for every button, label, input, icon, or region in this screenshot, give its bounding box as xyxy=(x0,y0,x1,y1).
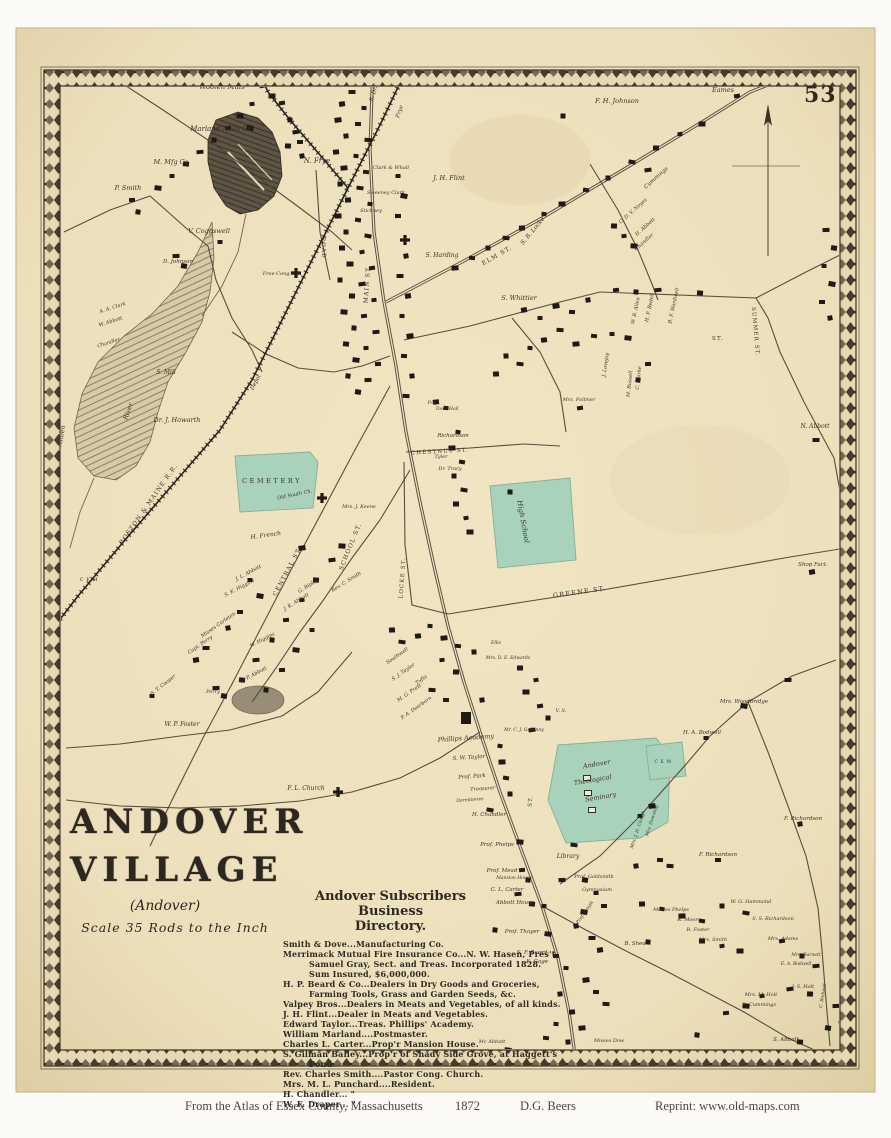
place-name-label: Misses Phelps xyxy=(652,907,689,913)
street-label: CEM xyxy=(80,577,100,583)
directory-title-line1: Andover Subscribers Business xyxy=(283,889,498,919)
building-marker xyxy=(237,610,243,614)
building-marker xyxy=(558,201,565,206)
place-name-label: Clark & Whall xyxy=(373,165,409,171)
building-marker xyxy=(516,839,523,844)
place-name-label: Mansion House xyxy=(495,875,532,881)
directory-entry-line: William Marland....Postmaster. xyxy=(283,1029,613,1039)
building-marker xyxy=(297,140,303,144)
place-name-label: P. Smith xyxy=(114,184,142,192)
building-marker xyxy=(533,678,539,683)
street-label: CEMETERY xyxy=(242,477,302,485)
place-name-label: Tyler xyxy=(434,454,448,460)
building-marker xyxy=(249,102,254,107)
place-name-label: F. H. Johnson xyxy=(594,97,639,105)
building-marker xyxy=(654,288,661,293)
church-marker xyxy=(317,496,327,499)
directory-entries: Smith & Dove...Manufacturing Co.Merrimac… xyxy=(283,939,613,1109)
building-marker xyxy=(351,325,356,330)
place-name-label: F. Richardson xyxy=(783,816,823,822)
building-marker xyxy=(339,101,346,107)
building-marker xyxy=(516,362,523,367)
building-marker xyxy=(361,314,367,319)
building-marker xyxy=(345,373,351,379)
map-scale-note: Scale 35 Rods to the Inch xyxy=(70,920,280,935)
building-marker xyxy=(639,901,645,906)
building-marker xyxy=(363,170,369,175)
building-marker xyxy=(611,223,617,228)
building-marker xyxy=(545,715,550,720)
place-name-label: S. Abbott xyxy=(773,1037,800,1043)
building-marker xyxy=(211,137,216,142)
directory-entry-line: Rev. Charles Smith....Pastor Cong. Churc… xyxy=(283,1069,613,1079)
building-marker xyxy=(353,154,358,158)
building-marker xyxy=(572,341,579,347)
building-marker xyxy=(666,864,673,868)
building-marker xyxy=(698,121,705,126)
high-school-area xyxy=(490,478,576,568)
place-name-label: V. S. xyxy=(556,708,567,714)
building-marker xyxy=(309,628,314,632)
building-marker xyxy=(831,245,838,251)
directory-entry-line: Edward Taylor...Treas. Phillips' Academy… xyxy=(283,1019,613,1029)
building-marker xyxy=(609,332,614,336)
academy-building xyxy=(461,712,471,724)
building-marker xyxy=(825,1025,832,1031)
place-name-label: R. Foster xyxy=(685,927,710,933)
street-label: ST. xyxy=(712,336,724,342)
building-marker xyxy=(471,649,476,654)
building-marker xyxy=(337,277,342,282)
building-marker xyxy=(333,149,339,155)
place-name-label: B. Cummings xyxy=(741,1002,776,1008)
building-marker xyxy=(497,744,503,749)
building-marker xyxy=(527,346,532,350)
building-marker xyxy=(355,122,361,126)
building-marker xyxy=(359,250,365,255)
building-marker xyxy=(677,132,683,137)
building-marker xyxy=(621,234,626,239)
building-marker xyxy=(812,438,819,442)
building-marker xyxy=(507,791,512,796)
place-name-label: E. A. Bodwell xyxy=(780,961,812,967)
building-marker xyxy=(633,289,638,294)
building-marker xyxy=(558,878,565,882)
directory-entry-line: Farming Tools, Grass and Garden Seeds, &… xyxy=(283,989,613,999)
building-marker xyxy=(285,143,291,148)
building-marker xyxy=(364,138,371,142)
caption-year: 1872 xyxy=(455,1099,480,1114)
place-name-label: S. S. Richardson xyxy=(752,916,794,922)
place-name-label: Mrs. J. Keene xyxy=(341,504,376,510)
place-name-label: R. Moore xyxy=(676,917,700,923)
building-marker xyxy=(193,657,200,663)
building-marker xyxy=(217,240,222,244)
building-marker xyxy=(819,300,825,304)
building-marker xyxy=(172,254,179,258)
scanned-map-page: Woolen MillsMurphyB. DriscollFryeMarland… xyxy=(0,0,891,1138)
place-name-label: P.O. xyxy=(427,400,437,406)
place-name-label: Mrs. Smith xyxy=(698,937,727,943)
building-marker xyxy=(154,185,162,191)
building-marker xyxy=(784,678,791,682)
building-marker xyxy=(352,357,360,363)
directory-entry-line: Mrs. M. L. Punchard....Resident. xyxy=(283,1079,613,1089)
building-marker xyxy=(719,903,724,908)
building-marker xyxy=(809,569,816,575)
building-marker xyxy=(395,214,401,218)
place-name-label: Ellis xyxy=(490,640,502,646)
building-marker xyxy=(657,858,663,862)
building-marker xyxy=(361,106,366,110)
place-name-label: W. P. Foster xyxy=(165,721,201,728)
directory-entry-line: Samuel Gray, Sect. and Treas. Incorporat… xyxy=(283,959,613,969)
building-marker xyxy=(560,113,565,118)
building-marker xyxy=(409,373,415,379)
building-marker xyxy=(268,93,275,98)
building-marker xyxy=(395,174,400,178)
building-marker xyxy=(345,197,351,202)
building-marker xyxy=(337,181,342,186)
building-marker xyxy=(338,543,345,548)
building-marker xyxy=(633,863,639,869)
place-name-label: Mrs. Adams xyxy=(767,936,799,942)
place-name-label: J. S. Holt xyxy=(791,984,815,990)
building-marker xyxy=(541,337,547,343)
building-marker xyxy=(522,689,529,694)
building-marker xyxy=(405,293,412,299)
directory-entry-line: J. H. Flint...Dealer in Meats and Vegeta… xyxy=(283,1009,613,1019)
place-name-label: Library xyxy=(556,853,580,860)
place-name-label: Richardson xyxy=(436,433,469,439)
place-name-label: F. Richardson xyxy=(698,852,738,858)
building-marker xyxy=(283,618,289,623)
building-marker xyxy=(812,964,819,969)
directory-entry-line: H. P. Beard & Co...Dealers in Dry Goods … xyxy=(283,979,613,989)
place-name-label: N. Abbott xyxy=(799,423,830,430)
building-marker xyxy=(334,213,341,218)
building-marker xyxy=(519,868,525,873)
building-marker xyxy=(356,186,363,191)
small-pond xyxy=(232,686,284,714)
building-marker xyxy=(715,858,721,862)
building-marker xyxy=(398,640,405,645)
map-title-block: ANDOVER VILLAGE (Andover) Scale 35 Rods … xyxy=(70,798,295,935)
place-name-label: Dr. J. Howarth xyxy=(153,416,201,424)
building-marker xyxy=(451,473,456,478)
place-name-label: Mrs. Follmer xyxy=(562,397,596,403)
building-marker xyxy=(591,334,597,339)
building-marker xyxy=(415,633,421,639)
building-marker xyxy=(287,117,292,122)
building-marker xyxy=(372,330,379,335)
map-title-subtitle: (Andover) xyxy=(70,898,260,914)
building-marker xyxy=(541,212,547,217)
place-name-label: Eames xyxy=(711,86,735,94)
building-marker xyxy=(129,198,135,202)
building-marker xyxy=(367,202,373,207)
building-marker xyxy=(463,516,469,521)
building-marker xyxy=(585,297,591,303)
directory-entry-line: Smith & Dove...Manufacturing Co. xyxy=(283,939,613,949)
place-name-label: Prof. Phelps xyxy=(479,842,514,848)
building-marker xyxy=(221,693,228,699)
caption-author: D.G. Beers xyxy=(520,1099,576,1114)
street-label: CEM xyxy=(654,759,673,765)
place-name-label: Mrs. Barnett xyxy=(790,952,820,958)
building-marker xyxy=(443,698,449,702)
building-marker xyxy=(375,362,381,366)
building-marker xyxy=(396,274,403,278)
building-marker xyxy=(466,529,473,534)
place-name-label: J. H. Flint xyxy=(431,174,465,182)
place-name-label: Mrs. M. Holt xyxy=(744,992,779,998)
building-marker xyxy=(569,310,575,314)
building-marker xyxy=(427,624,432,628)
building-marker xyxy=(807,991,813,996)
place-name-label: Marland Mills Co xyxy=(189,125,252,133)
caption-reprint: Reprint: www.old-maps.com xyxy=(655,1099,800,1114)
place-name-label: S. Whittier xyxy=(501,294,537,302)
street-label: ROAD xyxy=(320,237,327,259)
building-marker xyxy=(613,288,619,293)
place-name-label: Mrs. Woodbridge xyxy=(719,699,769,705)
directory-entry-line: S. Gilman Bailey...Prop'r of Shady Side … xyxy=(283,1049,613,1059)
page-number: 53 xyxy=(804,82,837,108)
place-name-label: Sweeney Clark xyxy=(367,190,405,196)
building-marker xyxy=(196,150,203,155)
building-marker xyxy=(502,236,509,241)
map-title-line2: VILLAGE xyxy=(70,846,295,894)
building-marker xyxy=(292,647,300,653)
building-marker xyxy=(402,394,409,398)
building-marker xyxy=(517,666,523,671)
place-name-label: D. Johnson xyxy=(162,259,193,265)
place-name-label: H. Chandler xyxy=(471,812,506,818)
building-marker xyxy=(479,697,485,703)
business-directory: Andover Subscribers Business Directory. … xyxy=(283,889,613,1109)
building-marker xyxy=(279,668,285,672)
building-marker xyxy=(498,759,505,764)
building-marker xyxy=(723,1011,729,1016)
caption-source: From the Atlas of Essex County, Massachu… xyxy=(185,1099,423,1114)
building-marker xyxy=(225,625,231,631)
building-marker xyxy=(389,627,395,632)
place-name-label: S. Harding xyxy=(426,252,459,259)
building-marker xyxy=(348,90,355,94)
building-marker xyxy=(363,346,368,350)
church-marker xyxy=(333,790,343,793)
place-name-label: N. Frye xyxy=(303,157,330,165)
paper-stain xyxy=(450,115,590,205)
building-marker xyxy=(605,175,610,180)
building-marker xyxy=(645,939,650,944)
building-marker xyxy=(346,261,353,266)
building-marker xyxy=(653,146,659,151)
place-name-label: H. A. Bodwell xyxy=(682,730,721,736)
building-marker xyxy=(364,378,371,382)
building-marker xyxy=(821,264,826,268)
place-name-label: W. G. Hammond xyxy=(731,899,772,905)
building-marker xyxy=(521,307,528,313)
building-marker xyxy=(349,293,355,298)
directory-entry-line: Sum Insured, $6,000,000. xyxy=(283,969,613,979)
paper-stain xyxy=(610,425,790,535)
directory-title-line2: Directory. xyxy=(283,919,498,934)
building-marker xyxy=(343,133,349,139)
place-name-label: Stickney xyxy=(360,208,382,214)
building-marker xyxy=(343,341,349,347)
building-marker xyxy=(343,229,348,234)
building-marker xyxy=(169,174,174,178)
building-marker xyxy=(694,1032,700,1038)
street-label: ST. xyxy=(527,795,534,807)
place-name-label: F. L. Church xyxy=(286,785,324,792)
building-marker xyxy=(263,687,269,693)
building-marker xyxy=(339,246,345,251)
bottom-caption: From the Atlas of Essex County, Massachu… xyxy=(0,1099,891,1119)
building-marker xyxy=(340,165,347,171)
building-marker xyxy=(493,371,499,376)
building-marker xyxy=(453,502,459,507)
place-name-label: Prof. Goldsmith xyxy=(573,874,614,880)
place-name-label: B. Shea xyxy=(623,941,645,947)
place-name-label: Town Hall xyxy=(435,406,459,412)
building-marker xyxy=(645,362,651,366)
building-marker xyxy=(451,265,458,271)
building-marker xyxy=(135,209,141,215)
building-marker xyxy=(697,290,703,296)
building-marker xyxy=(552,303,560,309)
building-marker xyxy=(401,354,407,358)
directory-entry-line: Merrimack Mutual Fire Insurance Co...N. … xyxy=(283,949,613,959)
building-marker xyxy=(503,353,508,358)
building-marker xyxy=(236,113,243,118)
building-marker xyxy=(624,335,632,341)
directory-entry-line: Pond. xyxy=(283,1059,613,1069)
building-marker xyxy=(399,314,404,318)
building-marker xyxy=(340,309,347,314)
building-marker xyxy=(428,688,435,692)
building-marker xyxy=(485,245,490,250)
building-marker xyxy=(736,948,743,953)
place-name-label: Mr. C. J. G. Penny xyxy=(503,727,544,733)
place-name-label: M. Mfg Co xyxy=(153,158,189,166)
building-marker xyxy=(507,489,512,494)
building-marker xyxy=(403,253,409,259)
building-marker xyxy=(371,298,376,303)
building-marker xyxy=(334,117,342,123)
building-marker xyxy=(556,328,563,332)
place-name-label: Dr. Tracy xyxy=(437,466,462,472)
building-marker xyxy=(719,944,725,949)
building-marker xyxy=(355,389,362,395)
place-name-label: Mrs. D. E. Edwards xyxy=(485,655,531,661)
seminary-building xyxy=(589,808,596,813)
building-marker xyxy=(453,669,459,674)
building-marker xyxy=(703,736,708,740)
directory-entry-line: Valpey Bros...Dealers in Meats and Veget… xyxy=(283,999,613,1009)
place-name-label: Prof. Mead xyxy=(486,868,518,874)
building-marker xyxy=(827,315,833,321)
place-name-label: V. Coggswell xyxy=(188,227,230,235)
building-marker xyxy=(832,1004,839,1008)
building-marker xyxy=(570,843,577,848)
directory-entry-line: Charles L. Carter...Prop'r Mansion House… xyxy=(283,1039,613,1049)
building-marker xyxy=(406,333,414,339)
place-name-label: S. Mill xyxy=(156,369,176,376)
building-marker xyxy=(439,658,444,663)
building-marker xyxy=(252,658,259,663)
place-name-label: Free Cong. Ch. xyxy=(262,271,302,277)
building-marker xyxy=(440,635,447,641)
church-marker xyxy=(400,238,410,241)
building-marker xyxy=(822,228,829,232)
building-marker xyxy=(455,644,461,649)
map-title-line1: ANDOVER xyxy=(70,798,295,846)
place-name-label: Perry xyxy=(205,689,220,695)
place-name-label: Shop Fact. xyxy=(798,562,828,568)
directory-entry-line: H. Chandler... " xyxy=(283,1089,613,1099)
building-marker xyxy=(537,316,542,320)
building-marker xyxy=(469,256,475,261)
building-marker xyxy=(519,225,525,230)
